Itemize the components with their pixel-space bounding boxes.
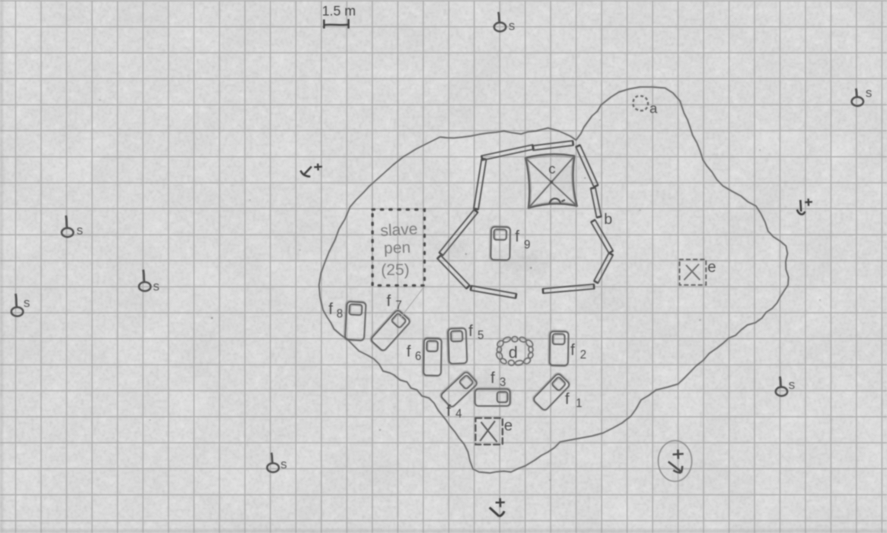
svg-text:(25): (25) (381, 262, 409, 279)
svg-text:3: 3 (500, 377, 506, 389)
svg-text:f: f (515, 229, 520, 246)
svg-text:s: s (509, 18, 516, 33)
svg-text:f: f (407, 344, 412, 361)
svg-text:f: f (447, 403, 452, 420)
svg-text:d: d (509, 344, 518, 362)
svg-text:slave: slave (380, 221, 418, 240)
svg-text:f: f (387, 293, 392, 310)
svg-text:1: 1 (576, 398, 582, 410)
svg-text:7: 7 (396, 300, 402, 312)
svg-text:f: f (565, 391, 570, 408)
svg-text:e: e (504, 418, 513, 435)
svg-text:c: c (549, 161, 556, 177)
svg-text:1.5 m: 1.5 m (322, 4, 356, 19)
svg-text:s: s (153, 279, 160, 294)
svg-text:f: f (329, 301, 334, 318)
svg-text:f: f (469, 323, 474, 340)
svg-text:8: 8 (337, 309, 343, 321)
svg-text:s: s (789, 377, 796, 392)
svg-text:a: a (650, 100, 658, 116)
svg-text:s: s (77, 223, 84, 238)
svg-text:9: 9 (524, 240, 530, 252)
svg-text:e: e (708, 259, 717, 276)
svg-text:5: 5 (478, 330, 484, 342)
svg-text:s: s (24, 295, 31, 310)
svg-text:4: 4 (456, 409, 463, 421)
svg-text:2: 2 (580, 350, 586, 362)
svg-text:s: s (281, 457, 288, 472)
svg-text:f: f (571, 342, 576, 359)
svg-text:b: b (604, 211, 612, 228)
svg-text:f: f (491, 370, 496, 387)
svg-text:s: s (866, 85, 873, 100)
svg-text:6: 6 (415, 351, 421, 363)
svg-text:pen: pen (384, 240, 411, 258)
